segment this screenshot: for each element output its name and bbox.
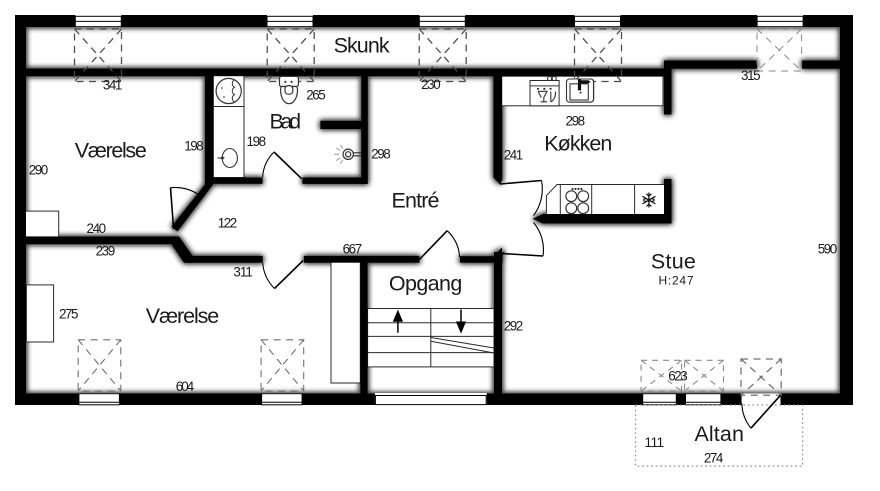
svg-text:311: 311 (233, 265, 253, 280)
svg-text:315: 315 (741, 68, 761, 83)
svg-text:Køkken: Køkken (544, 132, 612, 156)
svg-text:275: 275 (59, 307, 79, 322)
svg-text:298: 298 (566, 114, 586, 129)
svg-text:292: 292 (504, 319, 524, 334)
svg-text:623: 623 (668, 369, 688, 384)
svg-text:274: 274 (704, 450, 724, 465)
svg-text:298: 298 (371, 147, 391, 162)
svg-text:Bad: Bad (270, 110, 302, 134)
svg-text:Skunk: Skunk (334, 33, 390, 57)
svg-text:111: 111 (645, 435, 665, 450)
svg-text:Entré: Entré (392, 188, 440, 212)
svg-text:590: 590 (818, 242, 838, 257)
svg-text:122: 122 (218, 215, 238, 230)
svg-text:198: 198 (247, 134, 267, 149)
svg-text:Altan: Altan (694, 422, 744, 446)
svg-text:Opgang: Opgang (389, 272, 463, 296)
svg-text:241: 241 (504, 147, 524, 162)
svg-text:Værelse: Værelse (75, 138, 147, 162)
svg-text:Værelse: Værelse (146, 304, 220, 328)
svg-text:240: 240 (87, 221, 107, 236)
svg-text:290: 290 (29, 162, 49, 177)
svg-text:230: 230 (421, 77, 441, 92)
svg-text:239: 239 (96, 244, 116, 259)
svg-text:198: 198 (184, 138, 204, 153)
svg-text:265: 265 (306, 88, 326, 103)
svg-text:341: 341 (103, 77, 123, 92)
svg-text:667: 667 (343, 241, 363, 256)
svg-text:Stue: Stue (651, 249, 696, 273)
svg-text:604: 604 (176, 379, 195, 394)
svg-text:H:247: H:247 (659, 274, 694, 288)
